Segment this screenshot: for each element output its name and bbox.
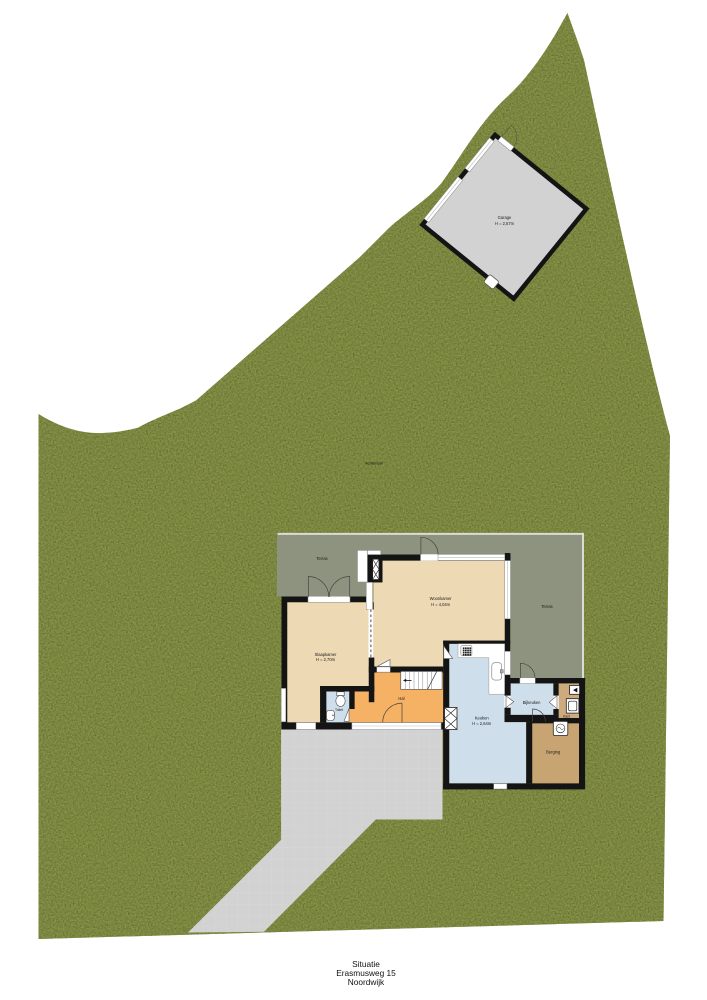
- svg-text:Achtertuin: Achtertuin: [365, 461, 383, 466]
- svg-text:H = 2,64m: H = 2,64m: [472, 721, 492, 726]
- svg-text:H = 2,57m: H = 2,57m: [495, 221, 515, 226]
- svg-text:Woonkamer: Woonkamer: [430, 596, 453, 601]
- svg-text:Hal: Hal: [398, 696, 404, 701]
- svg-text:Keuken: Keuken: [475, 716, 490, 721]
- svg-text:Kast: Kast: [563, 714, 570, 718]
- svg-text:Noordwijk: Noordwijk: [348, 977, 385, 987]
- svg-text:Berging: Berging: [546, 749, 561, 754]
- svg-text:Bijkeuken: Bijkeuken: [523, 700, 541, 705]
- svg-text:H = 2,70m: H = 2,70m: [316, 657, 336, 662]
- svg-text:Garage: Garage: [498, 215, 512, 220]
- svg-text:Toilet: Toilet: [335, 708, 343, 712]
- svg-text:H = 4,04m: H = 4,04m: [431, 602, 451, 607]
- svg-text:Terras: Terras: [541, 604, 552, 609]
- svg-text:Terras: Terras: [316, 556, 327, 561]
